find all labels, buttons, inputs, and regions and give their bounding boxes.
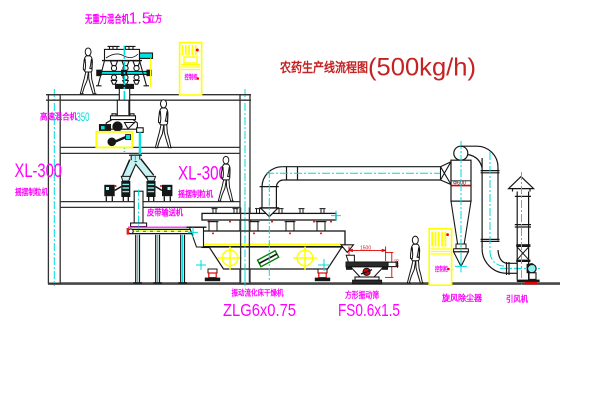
svg-text:控制柜: 控制柜 (435, 264, 448, 273)
svg-text:无重力混合机: 无重力混合机 (84, 13, 129, 26)
svg-text:XL-300: XL-300 (15, 160, 63, 182)
svg-text:摇摆制粒机: 摇摆制粒机 (15, 187, 48, 197)
svg-text:ZLG6x0.75: ZLG6x0.75 (223, 300, 296, 320)
svg-text:FS0.6x1.5: FS0.6x1.5 (338, 300, 400, 320)
svg-text:XL-300: XL-300 (178, 163, 227, 185)
svg-text:350: 350 (77, 112, 90, 124)
svg-text:立方: 立方 (148, 13, 162, 25)
svg-text:农药生产线流程图: 农药生产线流程图 (279, 60, 368, 75)
svg-text:方形振动筛: 方形振动筛 (345, 290, 379, 300)
svg-text:旋风除尘器: 旋风除尘器 (441, 293, 482, 303)
svg-text:振动流化床干燥机: 振动流化床干燥机 (232, 288, 284, 298)
svg-text:控制柜: 控制柜 (185, 72, 198, 81)
svg-text:摇摆制粒机: 摇摆制粒机 (178, 189, 213, 199)
svg-text:Φ600: Φ600 (453, 181, 466, 187)
svg-text:高速混合机: 高速混合机 (40, 112, 77, 122)
svg-text:(500kg/h): (500kg/h) (368, 54, 476, 82)
svg-text:引风机: 引风机 (506, 294, 528, 304)
svg-text:1500: 1500 (360, 245, 371, 251)
svg-text:皮带输送机: 皮带输送机 (146, 208, 183, 218)
